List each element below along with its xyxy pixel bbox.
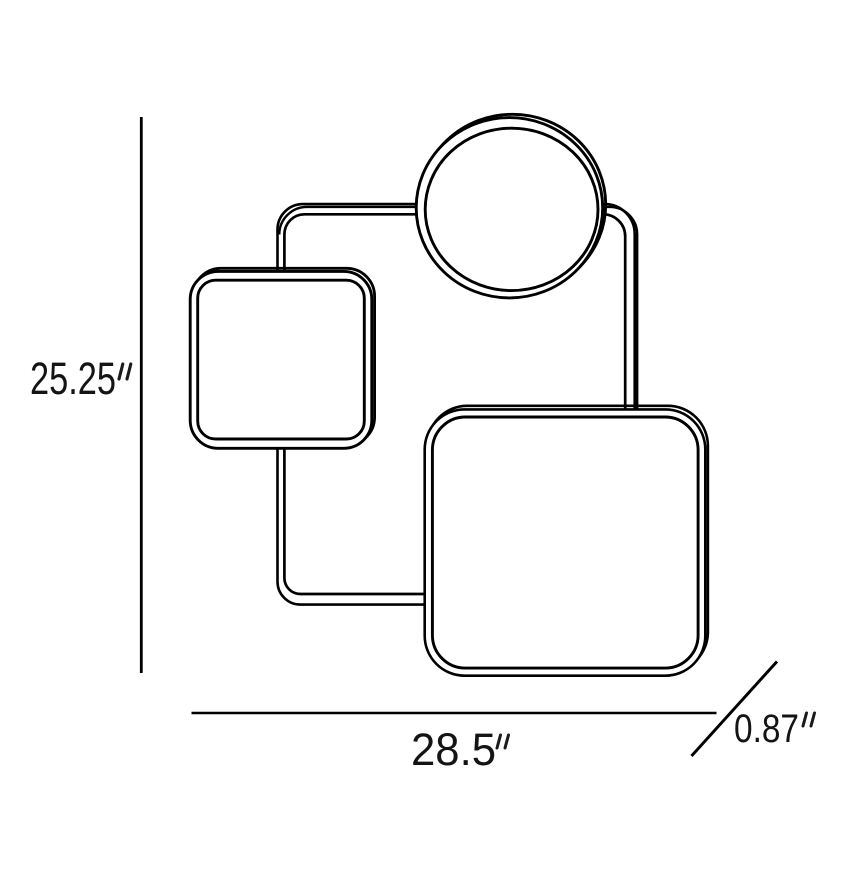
svg-text:25.25: 25.25: [30, 353, 116, 404]
svg-text:28.5: 28.5: [411, 724, 496, 775]
svg-text:0.87: 0.87: [734, 707, 799, 751]
